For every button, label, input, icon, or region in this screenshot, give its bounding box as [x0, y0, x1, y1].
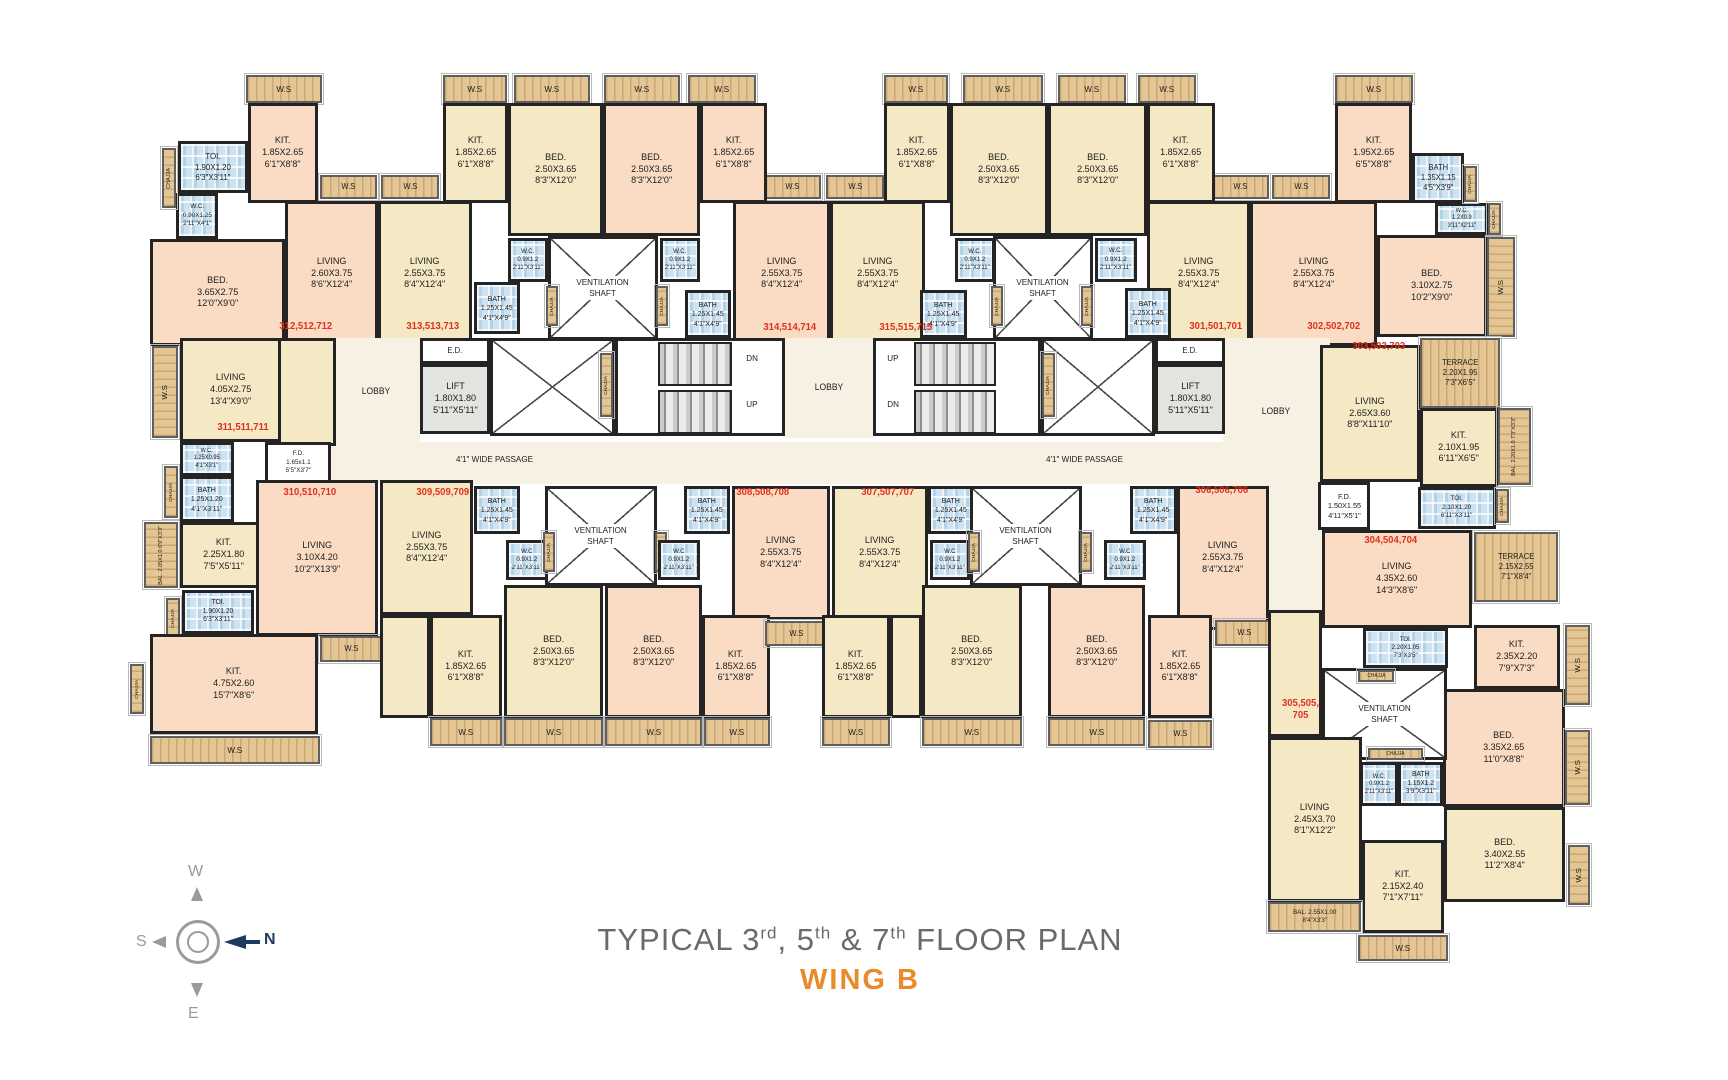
ed-left: E.D. — [420, 338, 490, 364]
living-310: LIVING3.10X4.2010'2"X13'9" — [256, 480, 378, 636]
ws-310-bottom: W.S — [150, 736, 320, 764]
chajja-shaft-tl-1: CHAJJA — [546, 286, 558, 326]
toi-310: TOI.1.90X1.206'3"X3'11" — [182, 590, 254, 634]
ws-bot-6: W.S — [922, 718, 1022, 746]
ws-mid-2: W.S — [381, 175, 439, 199]
passage-label-left: 4'1" WIDE PASSAGE — [430, 450, 560, 468]
bed-308: BED.2.50X3.658'3"X12'0" — [605, 585, 702, 718]
bed-306: BED.2.50X3.658'3"X12'0" — [1048, 585, 1145, 718]
stair-dn-right: DN — [876, 396, 910, 412]
stair-flight-r1 — [914, 342, 996, 386]
wc-311: W.C.1.25X0.954'1"X3'1" — [180, 442, 234, 476]
bath-307: BATH1.25X1.454'1"X4'9" — [928, 486, 974, 534]
chajja-shaft-br-1: CHAJJA — [968, 532, 980, 572]
compass-inner-ring-icon — [187, 931, 209, 953]
ws-top-10: W.S — [1335, 75, 1413, 103]
ws-bot-2: W.S — [504, 718, 603, 746]
wc-313: W.C.0.9X1.22'11"X3'11" — [508, 238, 548, 282]
unitnum-304: 304,504,704 — [1352, 534, 1430, 548]
kit-306: KIT.1.85X2.656'1"X8'8" — [1148, 615, 1212, 718]
unitnum-301: 301,501,701 — [1178, 320, 1254, 334]
ws-bot-5: W.S — [822, 718, 890, 746]
ws-bot-3: W.S — [605, 718, 702, 746]
unitnum-310: 310,510,710 — [272, 486, 348, 500]
fd-303: F.D.1.50X1.554'11"X5'1" — [1318, 482, 1370, 530]
entry-311 — [278, 338, 336, 446]
bal-305: BAL. 2.55X1.008'4"X3'3" — [1268, 902, 1361, 932]
lift-right: LIFT1.80X1.805'11"X5'11" — [1155, 364, 1225, 434]
bath-302: BATH1.35X1.154'5"X3'9" — [1412, 153, 1464, 203]
compass-west-arrow-icon — [191, 887, 203, 901]
unitnum-307: 307,507,707 — [850, 486, 926, 500]
shaft-top-right: VENTILATIONSHAFT — [993, 236, 1093, 340]
chajja-shaft-tl-2: CHAJJA — [656, 286, 668, 326]
wc-312: W.C.0.90X1.252'11"X4'1" — [176, 193, 218, 239]
ws-306-right: W.S — [1215, 620, 1273, 646]
wing-label: WING B — [530, 964, 1190, 997]
unitnum-306: 306,506,706 — [1184, 484, 1260, 498]
chajja-305-1: CHAJJA — [1358, 670, 1394, 682]
chajja-core-left: CHAJJA — [600, 353, 613, 417]
living-306: LIVING2.55X3.758'4"X12'4" — [1177, 486, 1269, 630]
bath-306: BATH1.25X1.454'1"X4'9" — [1130, 486, 1177, 534]
plan-title: TYPICAL 3rd, 5th & 7th FLOOR PLAN — [530, 922, 1190, 958]
ws-top-6: W.S — [884, 75, 948, 103]
ws-top-2: W.S — [443, 75, 507, 103]
ws-mid-5: W.S — [1212, 175, 1269, 199]
stair-up-left: UP — [734, 396, 770, 412]
bed-309: BED.2.50X3.658'3"X12'0" — [504, 585, 603, 718]
compass-east-arrow-icon — [191, 983, 203, 997]
wc-306: W.C0.9X1.22'11"X3'11" — [1104, 540, 1146, 580]
stair-dn-left: DN — [734, 350, 770, 366]
ws-305-right: W.S — [1568, 845, 1590, 905]
ed-right: E.D. — [1155, 338, 1225, 364]
kit-309: KIT.1.85X2.656'1"X8'8" — [430, 615, 502, 718]
living-309: LIVING2.55X3.758'4"X12'4" — [380, 480, 473, 615]
wc-314: W.C.0.9X1.22'11"X3'11" — [660, 238, 700, 282]
bed-302: BED.3.10X2.7510'2"X9'0" — [1377, 235, 1487, 337]
wc-301: W.C.0.9X1.22'11"X3'11" — [1095, 238, 1137, 282]
compass-north-arrow-tail-icon — [244, 940, 260, 944]
kit-312: KIT.1.85X2.656'1"X8'8" — [248, 103, 318, 203]
chajja-305-2: CHAJJA — [1368, 748, 1423, 760]
toi-304: TOI.2.20X1.057'3"X3'5" — [1363, 628, 1448, 668]
living-307: LIVING2.55X3.758'4"X12'4" — [832, 486, 928, 620]
kit-310: KIT.4.75X2.6015'7"X8'6" — [150, 634, 318, 734]
ws-mid-1: W.S — [320, 175, 377, 199]
fd-311: F.D.1.65x1.15'5"X3'7" — [265, 442, 331, 484]
ws-top-8: W.S — [1058, 75, 1126, 103]
ws-304-right-1: W.S — [1565, 625, 1590, 705]
bath-308: BATH1.25X1.454'1"X4'9" — [684, 486, 730, 534]
toi-312: TOI.1.90X1.206'3"X3'11" — [178, 141, 248, 193]
wc-305: W.C.0.9X1.22'11"X3'11" — [1360, 762, 1398, 806]
bed-313: BED.2.50X3.658'3"X12'0" — [508, 103, 603, 236]
compass-west-label: W — [188, 863, 203, 881]
kit-304: KIT.2.35X2.207'9"X7'3" — [1474, 625, 1560, 689]
plan-title-block: TYPICAL 3rd, 5th & 7th FLOOR PLAN WING B — [530, 922, 1190, 997]
unitnum-309: 309,509,709 — [405, 486, 481, 500]
wc-302: W.C.1.2X0.93'11"X2'11" — [1435, 203, 1488, 235]
bed-307: BED.2.50X3.658'3"X12'0" — [922, 585, 1022, 718]
unitnum-305: 305,505,705 — [1272, 696, 1328, 724]
shaft-bottom-left: VENTILATIONSHAFT — [545, 486, 657, 586]
bath-311: BATH1.25X1.204'1"X3'11" — [180, 476, 234, 522]
chajja-shaft-br-2: CHAJJA — [1080, 532, 1092, 572]
bath-305: BATH1.15X1.23'9"X3'11" — [1398, 762, 1443, 806]
kit-314: KIT.1.85X2.656'1"X8'8" — [700, 103, 767, 203]
unitnum-302: 302,502,702 — [1295, 320, 1373, 334]
ws-302-right: W.S — [1487, 237, 1515, 337]
chajja-310-2: CHAJJA — [130, 664, 144, 714]
compass-east-label: E — [188, 1005, 199, 1023]
shaft-bottom-right: VENTILATIONSHAFT — [970, 486, 1082, 586]
chajja-302-1: CHAJJA — [1464, 166, 1477, 202]
ws-bot-7: W.S — [1048, 718, 1145, 746]
kit-315: KIT.1.85X2.656'1"X8'8" — [884, 103, 950, 203]
terrace-304: TERRACE2.15X2.557'1"X8'4" — [1474, 532, 1558, 602]
unitnum-313: 313,513,713 — [395, 320, 471, 334]
ws-305-bottom: W.S — [1358, 935, 1448, 961]
kit-305: KIT.2.15X2.407'1"X7'11" — [1362, 840, 1444, 933]
chajja-shaft-tr-2: CHAJJA — [1081, 286, 1093, 326]
ws-top-1: W.S — [246, 75, 322, 103]
toi-303: TOI.2.10X1.206'11"X3'11" — [1418, 487, 1496, 529]
lobby-center: LOBBY — [785, 338, 873, 438]
ws-top-5: W.S — [688, 75, 756, 103]
kit-308: KIT.1.85X2.656'1"X8'8" — [702, 615, 770, 718]
entry-309 — [380, 615, 430, 718]
lift-left: LIFT1.80X1.805'11"X5'11" — [420, 364, 490, 434]
compass-north-arrow-icon — [224, 935, 246, 949]
compass-south-label: S — [136, 933, 147, 951]
unitnum-311: 311,511,711 — [205, 421, 281, 435]
chajja-core-right: CHAJJA — [1042, 353, 1055, 417]
ws-top-3: W.S — [514, 75, 590, 103]
entry-307 — [890, 615, 922, 718]
stair-flight-l2 — [658, 390, 732, 434]
ws-mid-4: W.S — [826, 175, 884, 199]
ws-top-7: W.S — [963, 75, 1043, 103]
ws-308: W.S — [765, 621, 827, 646]
bath-313: BATH1.25X1.454'1"X4'9" — [474, 282, 520, 334]
kit-313: KIT.1.85X2.656'1"X8'8" — [443, 103, 508, 203]
bed-304: BED.3.35X2.6511'0"X8'8" — [1443, 689, 1565, 807]
bath-314: BATH1.25X1.454'1"X4'9" — [685, 290, 731, 338]
ws-304-right-2: W.S — [1565, 730, 1590, 805]
living-305: LIVING2.45X3.708'1"X12'2" — [1268, 737, 1362, 902]
ws-311-left: W.S — [152, 346, 178, 438]
ws-bot-1: W.S — [430, 718, 502, 746]
bal-311: BAL. 2.05X1.0 6'9"X3'3" — [144, 522, 178, 588]
chajja-311: CHAJJA — [164, 466, 178, 518]
stair-flight-l1 — [658, 342, 732, 386]
shaft-top-left: VENTILATIONSHAFT — [548, 236, 658, 340]
unitnum-308: 308,508,708 — [725, 486, 801, 500]
chajja-shaft-bl-1: CHAJJA — [543, 532, 555, 572]
chajja-302-2: CHAJJA — [1488, 203, 1501, 235]
kit-307: KIT.1.85X2.656'1"X8'8" — [822, 615, 890, 718]
living-308: LIVING2.55X3.758'4"X12'4" — [732, 486, 830, 620]
ws-mid-3: W.S — [764, 175, 821, 199]
ws-top-9: W.S — [1138, 75, 1196, 103]
compass: W S E N — [130, 855, 290, 1035]
chajja-shaft-tr-1: CHAJJA — [991, 286, 1003, 326]
bed-315: BED.2.50X3.658'3"X12'0" — [950, 103, 1048, 236]
wc-309: W.C0.9X1.22'11"X3'11" — [506, 540, 548, 580]
ws-bot-4: W.S — [704, 718, 770, 746]
kit-311: KIT.2.25X1.807'5"X5'11" — [180, 522, 268, 588]
stair-flight-r2 — [914, 390, 996, 434]
wc-307: W.C0.9X1.22'11"X3'11" — [930, 540, 970, 580]
wc-308: W.C0.9X1.22'11"X3'11" — [658, 540, 700, 580]
kit-302: KIT.1.95X2.656'5"X8'8" — [1335, 103, 1412, 203]
bed-312: BED.3.65X2.7512'0"X9'0" — [150, 239, 285, 346]
unitnum-303: 303,503,703 — [1340, 340, 1418, 354]
bath-301: BATH1.25X1.454'1"X4'9" — [1125, 288, 1171, 338]
living-303: LIVING2.65X3.608'8"X11'10" — [1320, 345, 1420, 482]
kit-301: KIT.1.85X2.656'1"X8'8" — [1147, 103, 1215, 203]
kit-303: KIT.2.10X1.956'11"X6'5" — [1420, 408, 1498, 487]
terrace-303: TERRACE2.20X1.957'3"X6'5" — [1420, 338, 1500, 408]
unitnum-315: 315,515,715 — [868, 321, 944, 335]
passage-label-right: 4'1" WIDE PASSAGE — [1020, 450, 1150, 468]
compass-south-arrow-icon — [152, 936, 166, 948]
ws-310-right: W.S — [320, 636, 382, 662]
wc-315: W.C.0.9X1.22'11"X3'11" — [955, 238, 995, 282]
compass-north-label: N — [264, 931, 276, 949]
stair-up-right: UP — [876, 350, 910, 366]
bed-314: BED.2.50X3.658'3"X12'0" — [603, 103, 700, 236]
duct-left — [490, 338, 615, 436]
unitnum-312: 312,512,712 — [268, 320, 344, 334]
chajja-303: CHAJJA — [1496, 489, 1509, 523]
duct-right — [1041, 338, 1155, 436]
bed-301: BED.2.50X3.658'3"X12'0" — [1048, 103, 1147, 236]
ws-top-4: W.S — [604, 75, 680, 103]
chajja-310-1: CHAJJA — [166, 598, 180, 638]
lobby-left: LOBBY — [333, 338, 420, 446]
bal-303: BAL. 2.20X1.0 7'3"X3'3" — [1498, 408, 1531, 485]
chajja-312: CHAJJA — [162, 148, 176, 208]
ws-306-bottom: W.S — [1148, 720, 1212, 748]
unitnum-314: 314,514,714 — [752, 321, 828, 335]
bed-305: BED.3.40X2.5511'2"X8'4" — [1444, 807, 1565, 902]
ws-mid-6: W.S — [1272, 175, 1330, 199]
